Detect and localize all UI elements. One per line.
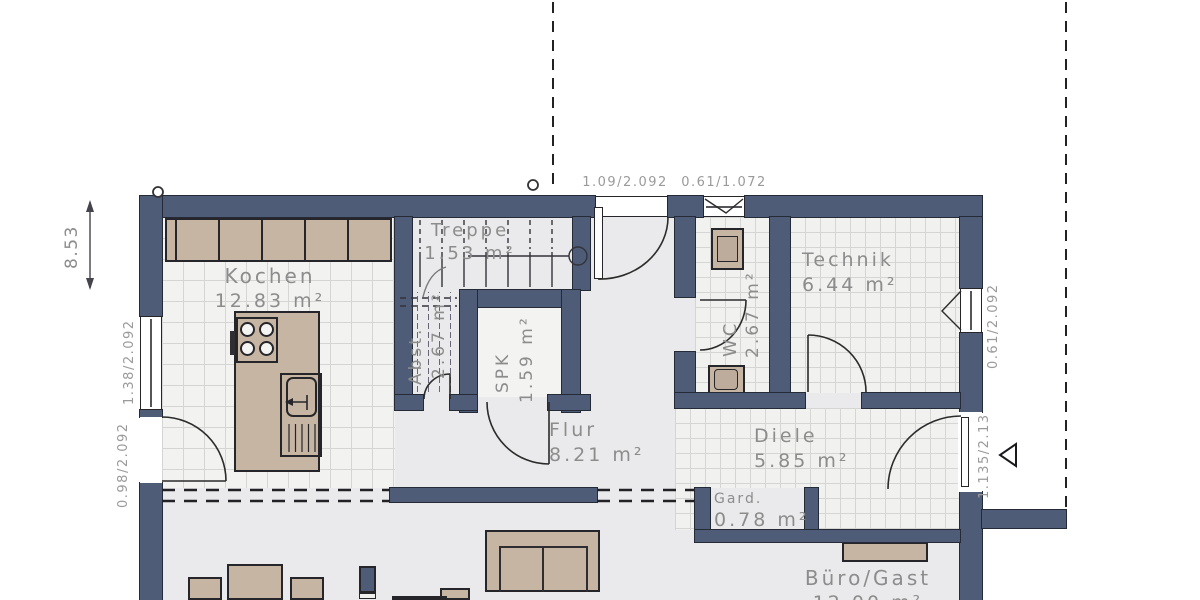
- entrance-arrow-icon: [1000, 444, 1016, 466]
- door-opening-left: [140, 417, 162, 483]
- counter-divider: [218, 219, 220, 261]
- counter-divider: [304, 219, 306, 261]
- counter-divider: [347, 219, 349, 261]
- room-name: Büro/Gast: [793, 565, 943, 591]
- washbasin-bowl: [717, 236, 738, 262]
- room-area: 6.44 m²: [802, 273, 897, 298]
- wall-top: [140, 196, 595, 217]
- room-area: 12.83 m²: [185, 289, 355, 314]
- wall-bottom-band: [450, 395, 477, 410]
- room-label-flur: Flur 8.21 m²: [549, 418, 644, 467]
- room-label-kochen: Kochen 12.83 m²: [185, 263, 355, 314]
- furniture-piece: [392, 596, 447, 600]
- floor-plan: Kochen 12.83 m² Treppe 1.53 m² Abst. 2.6…: [0, 0, 1200, 600]
- room-name: Technik: [802, 248, 897, 273]
- room-area: 1.53 m²: [415, 242, 525, 265]
- room-name: Diele: [754, 424, 849, 449]
- wall-right: [960, 217, 982, 288]
- toilet-bowl: [714, 369, 738, 390]
- stove-burner: [259, 341, 274, 356]
- window-glass-line: [150, 319, 152, 407]
- door-leaf-top: [594, 207, 603, 279]
- room-label-buero-gast: Büro/Gast 12.00 m²: [793, 565, 943, 600]
- window-glass-line: [706, 206, 742, 208]
- dimension-door-left: 0.98/2.092: [116, 415, 131, 515]
- wall-top: [745, 196, 982, 217]
- room-label-spk-name: SPK: [492, 342, 514, 402]
- dining-chair: [290, 577, 324, 600]
- flur-wall-bottom: [390, 488, 597, 502]
- dining-chair: [188, 577, 222, 600]
- wall-right: [960, 492, 982, 600]
- sink-basin: [286, 377, 317, 417]
- room-label-abst-name: Abst.: [405, 312, 427, 400]
- room-label-wc-name: WC: [719, 315, 742, 363]
- stove-burner: [240, 341, 255, 356]
- dimension-overall-height: 8.53: [62, 215, 82, 280]
- wall-bottom-band: [548, 395, 590, 410]
- wall-top: [668, 196, 703, 217]
- height-dimension-arrow: [86, 200, 94, 290]
- window-glass-line: [970, 291, 972, 330]
- window-wc: [703, 196, 745, 217]
- wc-wall-left: [675, 217, 695, 297]
- room-label-treppe: Treppe 1.53 m²: [415, 219, 525, 266]
- stove-handle: [230, 331, 235, 355]
- dimension-window-technik: 0.61/2.092: [986, 280, 1001, 372]
- room-label-wc-area: 2.67 m²: [742, 268, 764, 360]
- room-area: 0.78 m²: [714, 508, 809, 533]
- kitchen-counter: [165, 218, 392, 262]
- room-name: Gard.: [714, 490, 809, 508]
- room-area: 5.85 m²: [754, 449, 849, 474]
- room-label-spk-area: 1.59 m²: [516, 315, 538, 403]
- wall-stairs-hall: [573, 217, 590, 290]
- spk-wall-right: [562, 290, 580, 412]
- window-left: [140, 316, 162, 410]
- wall-right: [960, 333, 982, 412]
- dimension-window-left: 1.38/2.092: [122, 312, 137, 412]
- room-label-technik: Technik 6.44 m²: [802, 248, 897, 297]
- wall-left: [140, 483, 162, 600]
- technik-wall-bottom: [862, 393, 960, 408]
- sideboard: [359, 566, 376, 593]
- sideboard-lower: [359, 593, 376, 599]
- sofa-cushion-divider: [542, 546, 544, 592]
- room-name: Treppe: [415, 219, 525, 242]
- buero-furniture: [842, 542, 928, 562]
- wc-technik-wall-bottom: [675, 393, 805, 408]
- counter-divider: [261, 219, 263, 261]
- counter-divider: [175, 219, 177, 261]
- dimension-door-entrance: 1.135/2.13: [977, 410, 992, 502]
- stove-burner: [240, 322, 255, 337]
- door-opening-top: [595, 196, 668, 217]
- dimension-door-top: 1.09/2.092: [573, 175, 677, 190]
- wall-extension: [982, 510, 1066, 528]
- room-label-diele: Diele 5.85 m²: [754, 424, 849, 473]
- wall-left: [140, 196, 162, 316]
- door-leaf-entrance: [961, 417, 969, 487]
- room-area: 12.00 m²: [793, 591, 943, 600]
- room-label-gard: Gard. 0.78 m²: [714, 490, 809, 533]
- room-area: 8.21 m²: [549, 443, 644, 468]
- wc-technik-wall: [770, 217, 790, 408]
- dimension-window-wc: 0.61/1.072: [672, 175, 776, 190]
- dining-table: [227, 564, 283, 600]
- stove-burner: [259, 322, 274, 337]
- wall-left: [140, 410, 162, 417]
- spk-wall-left: [460, 290, 477, 412]
- room-name: Kochen: [185, 263, 355, 289]
- downpipe-marker: [528, 180, 538, 190]
- room-name: Flur: [549, 418, 644, 443]
- room-label-abst-area: 2.67 m²: [428, 283, 450, 388]
- window-technik: [960, 288, 982, 333]
- technik-floor: [790, 217, 960, 393]
